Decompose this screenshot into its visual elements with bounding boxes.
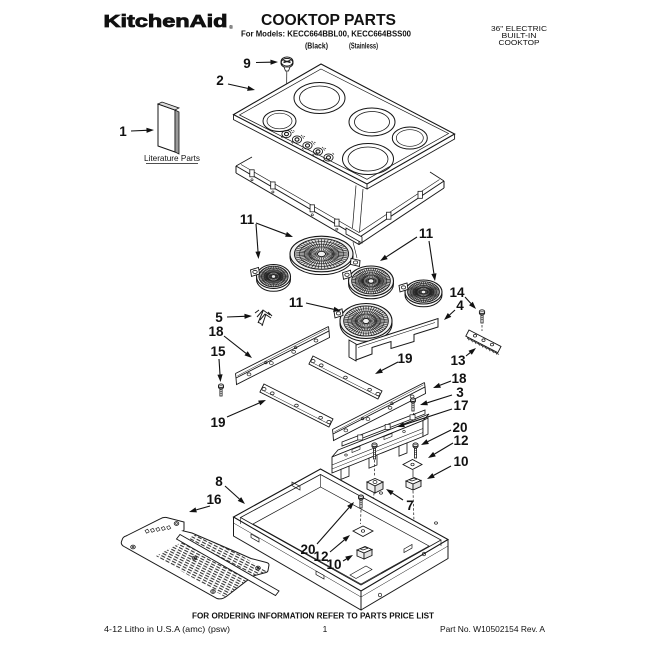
svg-text:2: 2 <box>216 73 224 88</box>
svg-text:11: 11 <box>240 212 255 227</box>
svg-text:7: 7 <box>406 498 414 513</box>
svg-text:10: 10 <box>453 454 468 469</box>
svg-text:BUILT-IN: BUILT-IN <box>502 33 537 40</box>
svg-text:1: 1 <box>323 624 328 634</box>
svg-text:19: 19 <box>210 415 225 430</box>
svg-text:5: 5 <box>215 310 223 325</box>
svg-text:1: 1 <box>119 124 127 139</box>
svg-text:Part No. W10502154 Rev. A: Part No. W10502154 Rev. A <box>440 624 545 634</box>
svg-text:9: 9 <box>243 56 251 71</box>
svg-text:19: 19 <box>397 351 412 366</box>
svg-text:11: 11 <box>419 226 434 241</box>
svg-text:8: 8 <box>215 474 223 489</box>
svg-text:FOR ORDERING INFORMATION REFER: FOR ORDERING INFORMATION REFER TO PARTS … <box>192 612 434 621</box>
svg-text:14: 14 <box>449 285 465 300</box>
svg-text:(Black): (Black) <box>305 42 328 51</box>
svg-text:15: 15 <box>210 344 226 359</box>
svg-text:13: 13 <box>450 353 466 368</box>
svg-text:18: 18 <box>451 371 467 386</box>
svg-text:COOKTOP: COOKTOP <box>499 40 540 47</box>
svg-text:For Models: KECC664BBL00, KECC: For Models: KECC664BBL00, KECC664BSS00 <box>241 29 411 39</box>
svg-text:17: 17 <box>453 398 468 413</box>
svg-text:11: 11 <box>289 295 304 310</box>
svg-text:12: 12 <box>453 433 468 448</box>
svg-text:36" ELECTRIC: 36" ELECTRIC <box>491 26 547 33</box>
svg-text:®: ® <box>229 24 233 31</box>
svg-text:KitchenAid: KitchenAid <box>104 11 228 31</box>
svg-text:(Stainless): (Stainless) <box>349 42 378 51</box>
svg-text:16: 16 <box>206 492 222 507</box>
svg-text:COOKTOP PARTS: COOKTOP PARTS <box>261 12 396 29</box>
svg-text:10: 10 <box>326 557 341 572</box>
svg-text:4: 4 <box>456 298 464 313</box>
svg-text:Literature Parts: Literature Parts <box>144 154 200 163</box>
svg-text:4-12 Litho in U.S.A (amc) (ps: 4-12 Litho in U.S.A (amc) (psw) <box>104 624 230 634</box>
svg-text:18: 18 <box>208 324 224 339</box>
